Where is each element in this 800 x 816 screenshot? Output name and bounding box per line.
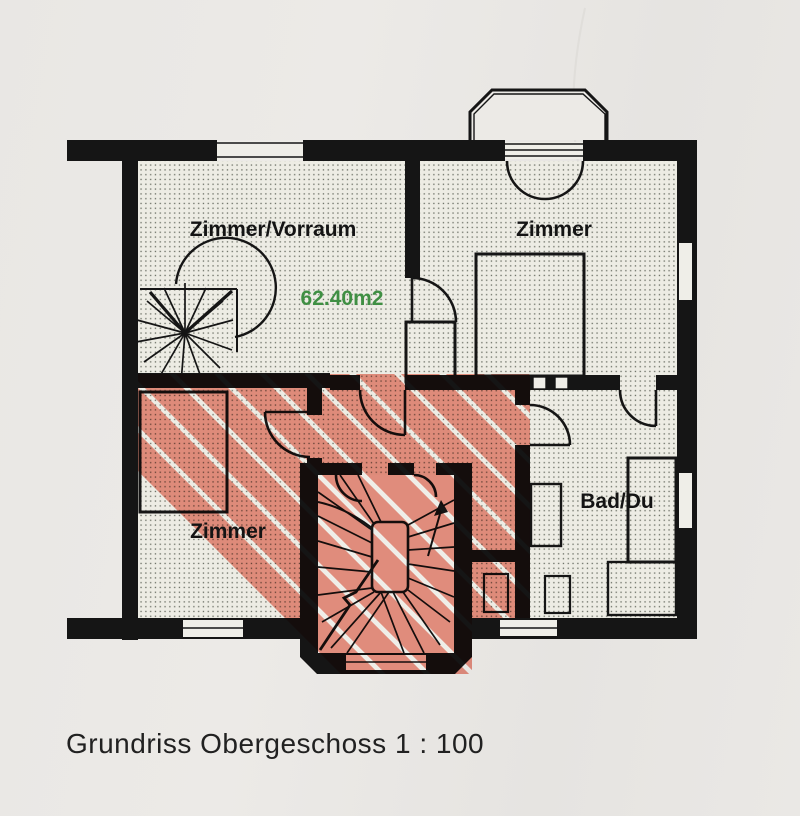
scanned-floorplan-page: Zimmer/Vorraum Zimmer Zimmer Bad/Du 62.4… <box>0 0 800 816</box>
room-label-zimmer-top-right: Zimmer <box>516 218 592 241</box>
floor-plan-image: Zimmer/Vorraum Zimmer Zimmer Bad/Du 62.4… <box>0 0 800 816</box>
room-label-bad-du: Bad/Du <box>580 490 654 513</box>
plan-caption: Grundriss Obergeschoss 1 : 100 <box>66 728 484 759</box>
area-label: 62.40m2 <box>301 287 384 310</box>
room-label-zimmer-bottom-left: Zimmer <box>190 520 266 543</box>
bay-window <box>470 90 607 140</box>
room-label-zimmer-vorraum: Zimmer/Vorraum <box>190 218 357 241</box>
